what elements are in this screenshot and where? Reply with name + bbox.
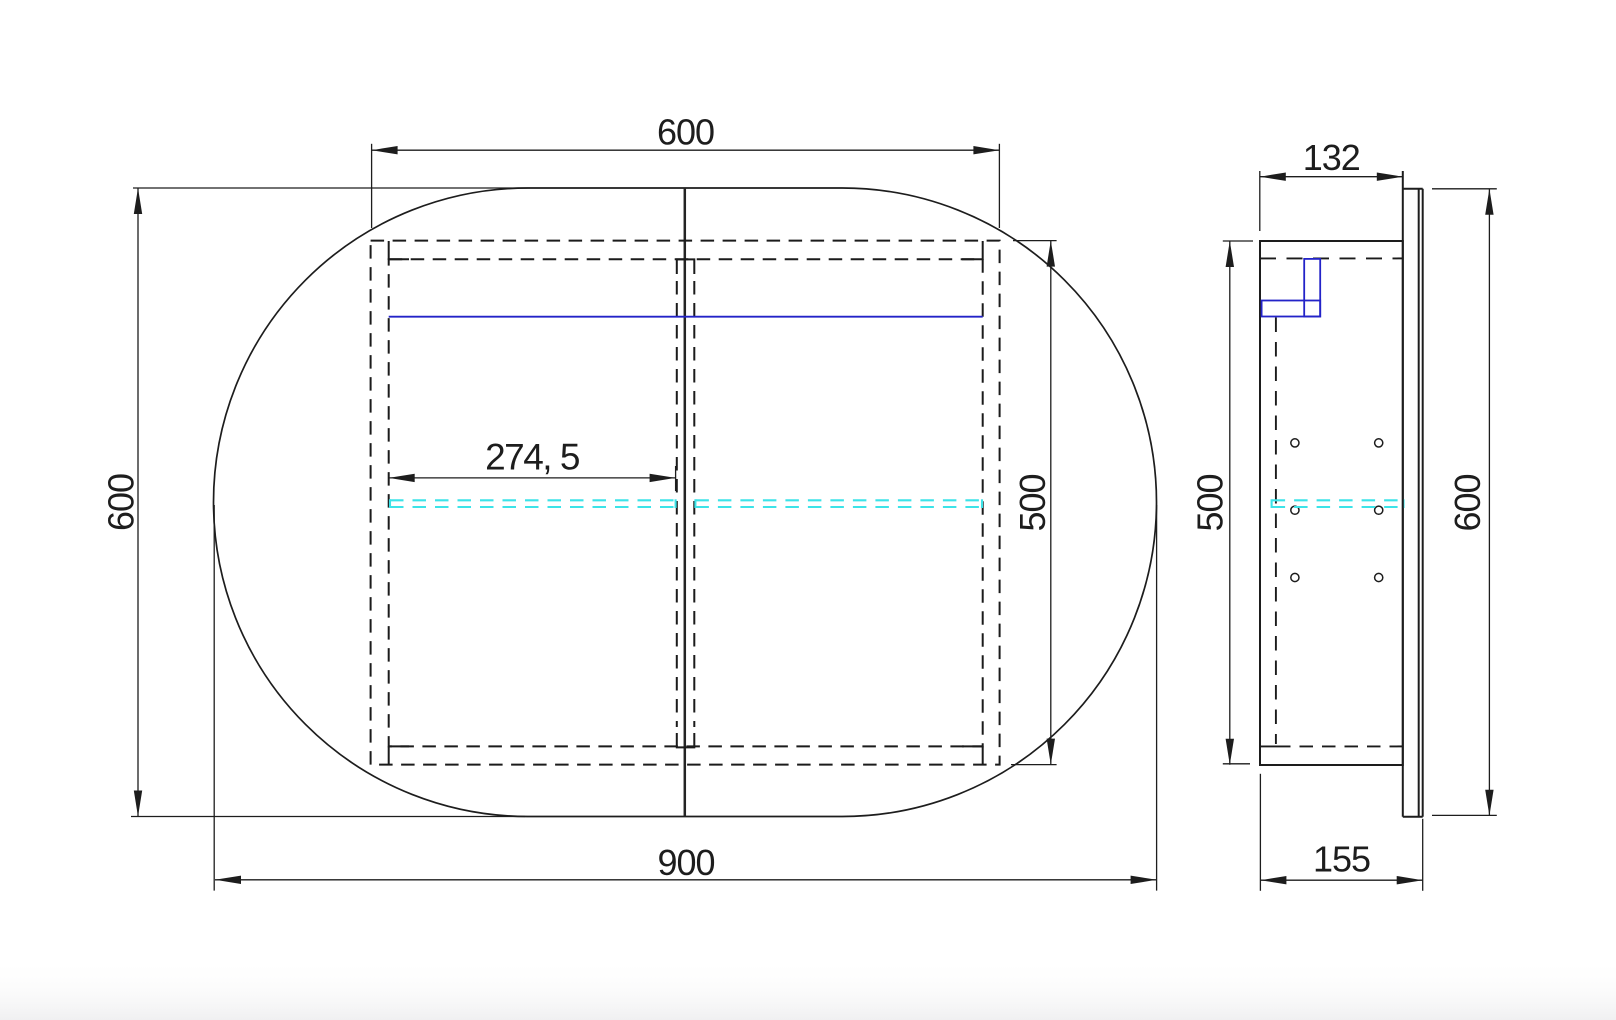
svg-text:155: 155 (1313, 838, 1370, 879)
svg-text:600: 600 (1447, 474, 1488, 531)
svg-text:500: 500 (1190, 474, 1231, 531)
svg-text:600: 600 (100, 474, 141, 531)
svg-text:600: 600 (657, 112, 714, 153)
svg-text:132: 132 (1303, 137, 1360, 178)
svg-text:900: 900 (657, 842, 714, 883)
svg-text:500: 500 (1012, 474, 1053, 531)
svg-text:274, 5: 274, 5 (485, 437, 580, 478)
